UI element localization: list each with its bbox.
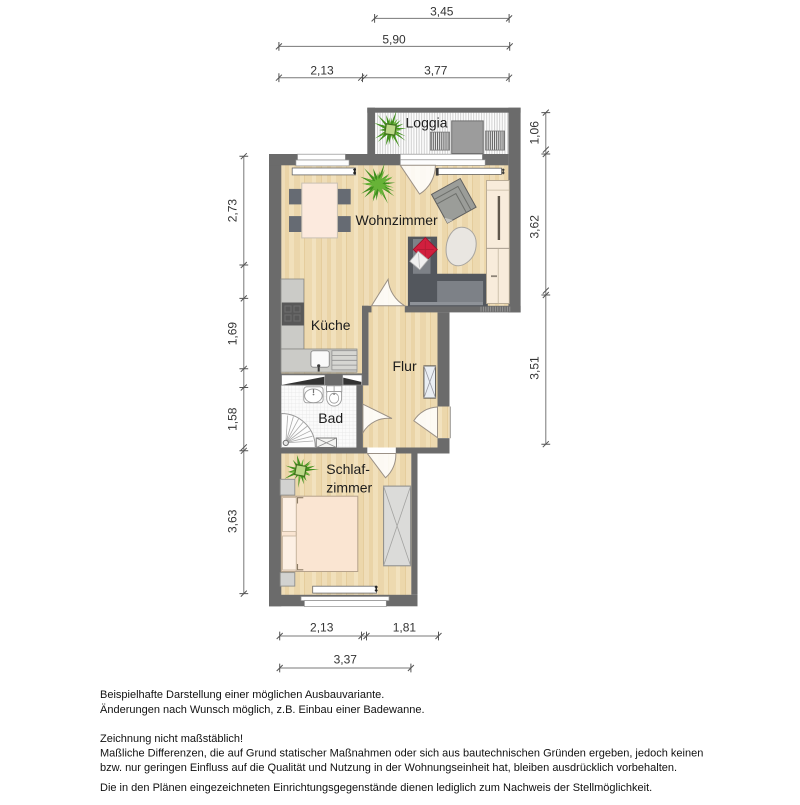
svg-text:Wohnzimmer: Wohnzimmer xyxy=(356,212,439,228)
svg-text:3,77: 3,77 xyxy=(424,64,448,78)
svg-text:Loggia: Loggia xyxy=(406,115,448,131)
svg-text:1,58: 1,58 xyxy=(226,407,240,431)
svg-text:zimmer: zimmer xyxy=(326,480,372,496)
svg-text:Bad: Bad xyxy=(318,410,343,426)
svg-text:Zeichnung nicht maßstäblich!: Zeichnung nicht maßstäblich! xyxy=(100,733,243,745)
svg-text:Änderungen nach Wunsch möglich: Änderungen nach Wunsch möglich, z.B. Ein… xyxy=(100,704,425,716)
svg-text:1,06: 1,06 xyxy=(528,121,542,145)
svg-text:1,81: 1,81 xyxy=(393,620,417,634)
svg-text:3,63: 3,63 xyxy=(226,509,240,533)
svg-text:2,13: 2,13 xyxy=(310,620,334,634)
svg-text:Schlaf-: Schlaf- xyxy=(326,461,370,477)
svg-text:bzw. nur geringen Einfluss auf: bzw. nur geringen Einfluss auf die Quali… xyxy=(100,762,677,774)
svg-text:3,37: 3,37 xyxy=(334,652,358,666)
svg-text:Maßliche Differenzen, die auf: Maßliche Differenzen, die auf Grund stat… xyxy=(100,748,703,760)
svg-text:5,90: 5,90 xyxy=(382,32,406,46)
svg-text:Flur: Flur xyxy=(393,358,417,374)
svg-text:Die in den Plänen eingezeichne: Die in den Plänen eingezeichneten Einric… xyxy=(100,782,652,794)
svg-text:2,13: 2,13 xyxy=(310,64,334,78)
svg-text:3,51: 3,51 xyxy=(528,356,542,380)
svg-text:1,69: 1,69 xyxy=(226,322,240,346)
svg-text:2,73: 2,73 xyxy=(226,199,240,223)
svg-text:Küche: Küche xyxy=(311,317,351,333)
svg-text:Beispielhafte Darstellung eine: Beispielhafte Darstellung einer mögliche… xyxy=(100,689,384,701)
svg-text:3,45: 3,45 xyxy=(430,4,454,18)
svg-text:3,62: 3,62 xyxy=(528,215,542,239)
